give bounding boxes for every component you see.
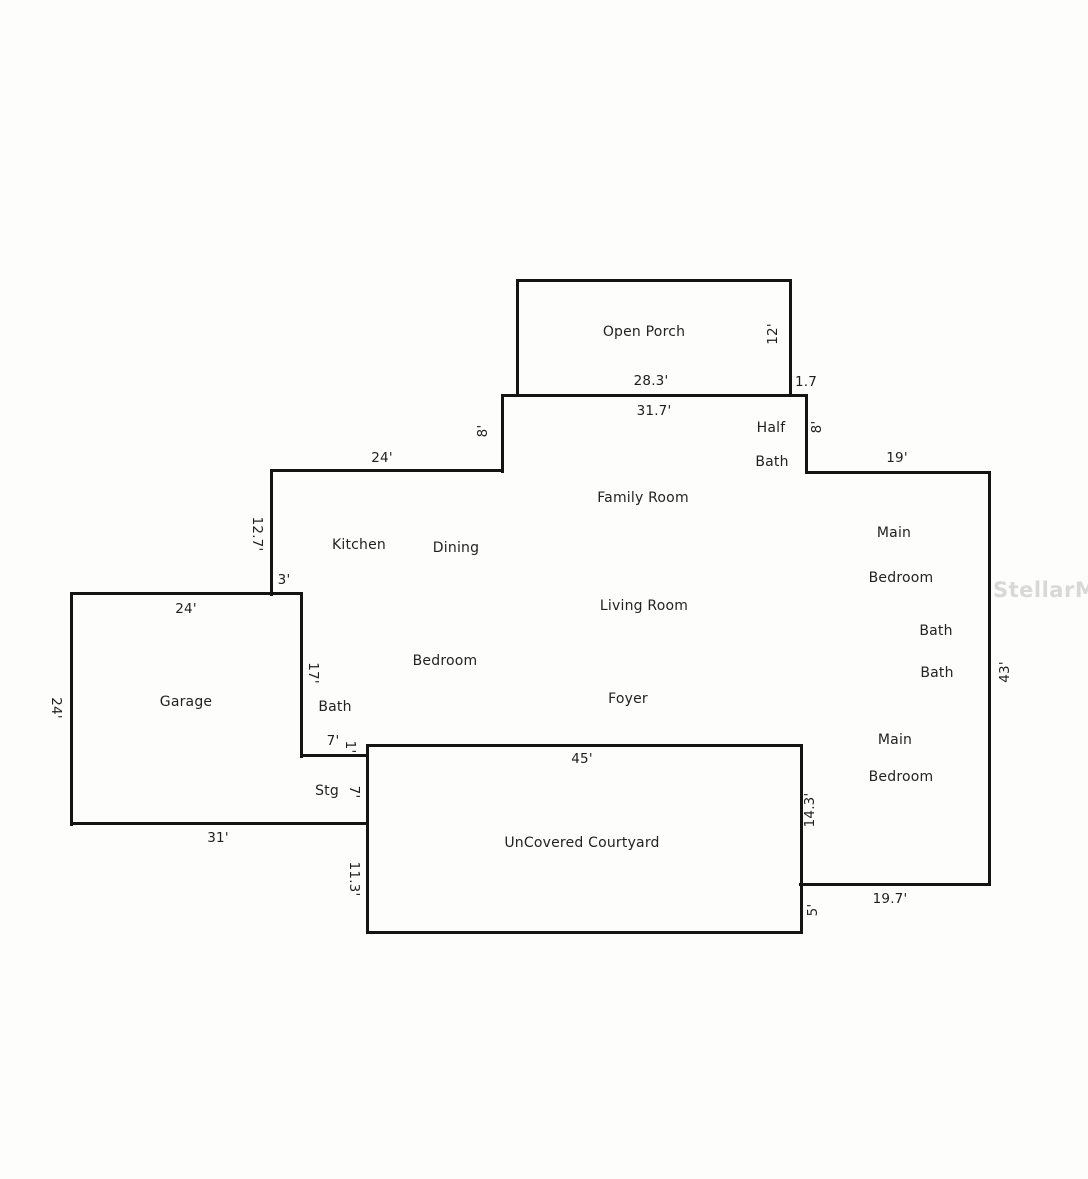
room-label-open-porch: Open Porch [603,324,685,340]
room-label-bath-lower: Bath [920,665,953,681]
room-label-half-bath-line1: Half [757,420,786,436]
stellar-mls-watermark: StellarMLS [993,578,1088,602]
dim-stg-height: 7' [346,786,362,799]
room-label-main-bedroom-lower-line1: Main [878,732,912,748]
room-label-courtyard: UnCovered Courtyard [504,835,659,851]
dim-jog-3: 3' [278,572,291,588]
wall-porch-top [516,279,792,282]
dim-right-wall: 43' [997,661,1013,683]
room-label-family-room: Family Room [597,490,689,506]
room-label-living-room: Living Room [600,598,688,614]
dim-bath-width: 7' [327,733,340,749]
room-label-foyer: Foyer [608,691,648,707]
dim-wing-top: 19' [886,450,908,466]
dim-bedroom-bottom: 19.7' [873,891,908,907]
dim-porch-depth: 12' [765,323,781,345]
dim-courtyard-width: 45' [571,751,593,767]
room-label-main-bedroom-upper-line2: Bedroom [869,570,934,586]
wall-porch-left [516,279,519,397]
room-label-half-bath-line2: Bath [755,454,788,470]
dim-porch-offset: 1.7 [795,374,817,390]
dim-garage-top: 24' [175,601,197,617]
dim-courtyard-step: 5' [805,904,821,917]
wall-step-left [501,394,504,473]
room-label-bath-garage: Bath [318,699,351,715]
wall-step-right [805,394,808,474]
dim-courtyard-right: 14.3' [802,793,818,828]
wall-garage-left [70,592,73,826]
dim-garage-left: 24' [48,697,64,719]
dim-house-top-width: 31.7' [637,403,672,419]
room-label-kitchen: Kitchen [332,537,386,553]
dim-courtyard-left: 11.3' [346,862,362,897]
wall-bath-left [300,592,303,758]
dim-jog-1: 1' [342,741,358,754]
dim-step-left: 8' [475,425,491,438]
wall-porch-right [789,279,792,397]
wall-bedroom-bottom [799,883,991,886]
wall-kitchen-left [270,469,273,596]
wall-garage-bottom [70,822,369,825]
dim-step-right: 8' [809,421,825,434]
room-label-bath-upper: Bath [919,623,952,639]
room-label-stg: Stg [315,783,339,799]
room-label-dining: Dining [433,540,479,556]
dim-kitchen-left: 12.7' [249,517,265,552]
dim-bath-wall: 17' [305,662,321,684]
room-label-bedroom: Bedroom [413,653,478,669]
dim-kitchen-top: 24' [371,450,393,466]
floor-plan: Open Porch Half Bath Family Room Kitchen… [0,0,1088,1179]
dim-porch-width: 28.3' [634,373,669,389]
wall-kitchen-top [270,469,504,472]
wall-bath-bottom [300,754,369,757]
wall-house-top [501,394,808,397]
wall-wing-top [805,471,991,474]
dim-garage-bottom: 31' [207,830,229,846]
room-label-main-bedroom-lower-line2: Bedroom [869,769,934,785]
wall-right [988,471,991,886]
room-label-main-bedroom-upper-line1: Main [877,525,911,541]
wall-garage-top [70,592,303,595]
room-label-garage: Garage [160,694,212,710]
